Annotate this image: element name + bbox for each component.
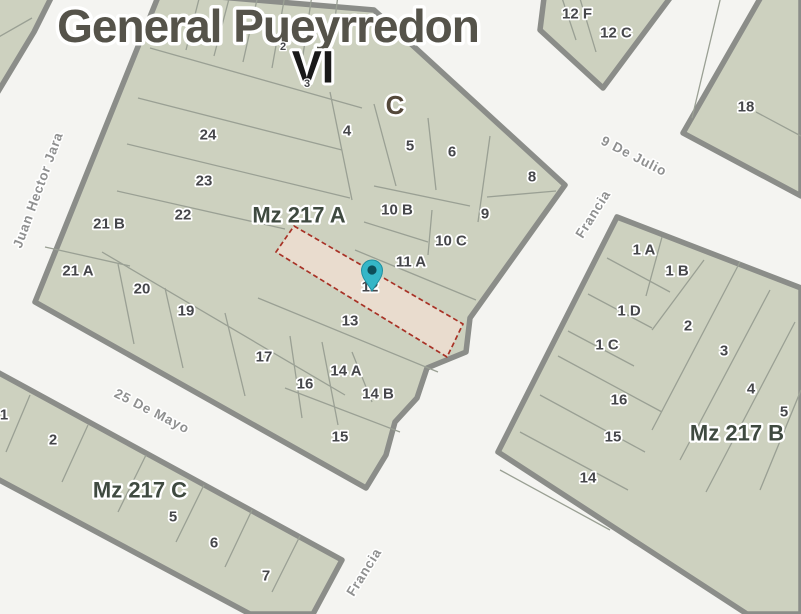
parcel-label-20: 20 (134, 281, 151, 298)
parcel-label-22: 22 (175, 207, 192, 224)
parcel-label-14: 14 (580, 470, 597, 487)
parcel-label-1: 1 (0, 407, 8, 424)
zone-label: VI (292, 42, 335, 93)
parcel-label-10-c: 10 C (435, 233, 467, 250)
parcel-label-1-a: 1 A (633, 242, 656, 259)
section-label: C (386, 90, 405, 120)
parcel-label-5: 5 (780, 404, 788, 421)
parcel-label-10-b: 10 B (381, 202, 413, 219)
block-label-mz-217-a: Mz 217 A (252, 203, 345, 228)
parcel-label-15: 15 (605, 429, 622, 446)
parcel-label-14-a: 14 A (330, 363, 361, 380)
municipality-title: General Pueyrredon (57, 0, 479, 52)
parcel-label-16: 16 (297, 376, 314, 393)
parcel-label-4: 4 (343, 123, 352, 140)
cadastral-map-canvas[interactable]: General Pueyrredon VI C Mz 217 A Mz 217 … (0, 0, 801, 614)
parcel-label-2: 2 (684, 318, 692, 335)
parcel-label-12-c: 12 C (600, 25, 632, 42)
parcel-label-6: 6 (210, 535, 218, 552)
block-label-mz-217-c: Mz 217 C (93, 478, 187, 503)
parcel-label-2: 2 (49, 432, 57, 449)
parcel-label-5: 5 (406, 138, 414, 155)
parcel-label-9: 9 (481, 206, 489, 223)
parcel-label-14-b: 14 B (362, 386, 394, 403)
parcel-label-1-c: 1 C (595, 337, 619, 354)
parcel-label-3: 3 (304, 78, 310, 90)
parcel-label-17: 17 (256, 349, 273, 366)
parcel-label-6: 6 (448, 144, 456, 161)
parcel-label-2: 2 (280, 41, 286, 53)
parcel-label-3: 3 (720, 343, 728, 360)
map-viewport: General Pueyrredon VI C Mz 217 A Mz 217 … (0, 0, 801, 614)
parcel-label-18: 18 (738, 99, 755, 116)
parcel-label-12-f: 12 F (562, 6, 592, 23)
parcel-label-8: 8 (528, 169, 536, 186)
parcel-label-1-d: 1 D (617, 303, 641, 320)
parcel-label-24: 24 (200, 127, 217, 144)
parcel-label-11-a: 11 A (396, 254, 426, 271)
parcel-label-21-a: 21 A (62, 263, 93, 280)
parcel-label-15: 15 (332, 429, 349, 446)
parcel-label-23: 23 (196, 173, 213, 190)
block-label-mz-217-b: Mz 217 B (690, 421, 784, 446)
parcel-label-7: 7 (262, 568, 270, 585)
parcel-label-1-b: 1 B (665, 263, 689, 280)
parcel-label-19: 19 (178, 303, 195, 320)
parcel-label-5: 5 (169, 509, 177, 526)
parcel-label-4: 4 (747, 381, 756, 398)
parcel-label-16: 16 (611, 392, 628, 409)
parcel-label-21-b: 21 B (93, 216, 125, 233)
parcel-label-13: 13 (342, 313, 359, 330)
